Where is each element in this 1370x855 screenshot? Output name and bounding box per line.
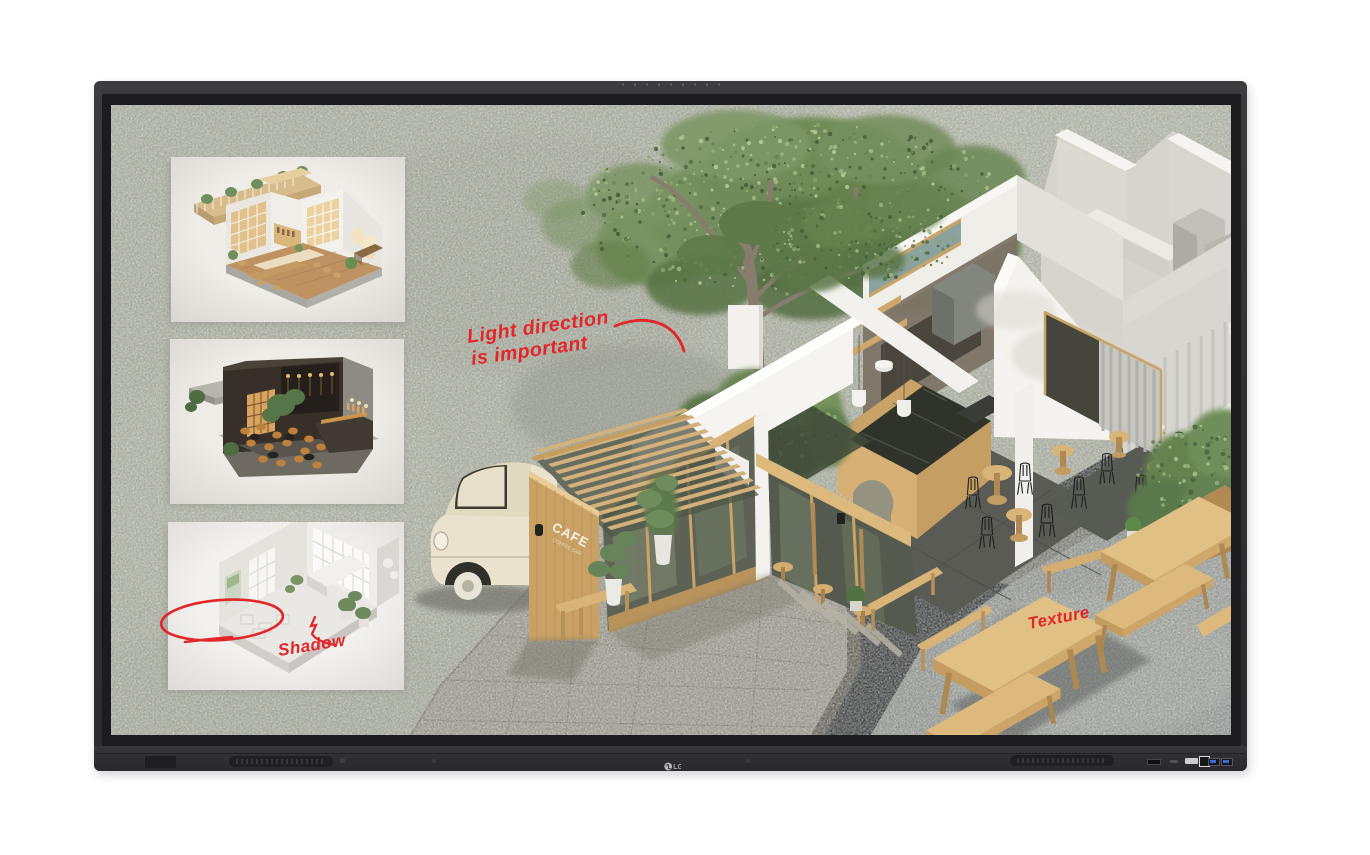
- svg-text:LG: LG: [673, 764, 681, 771]
